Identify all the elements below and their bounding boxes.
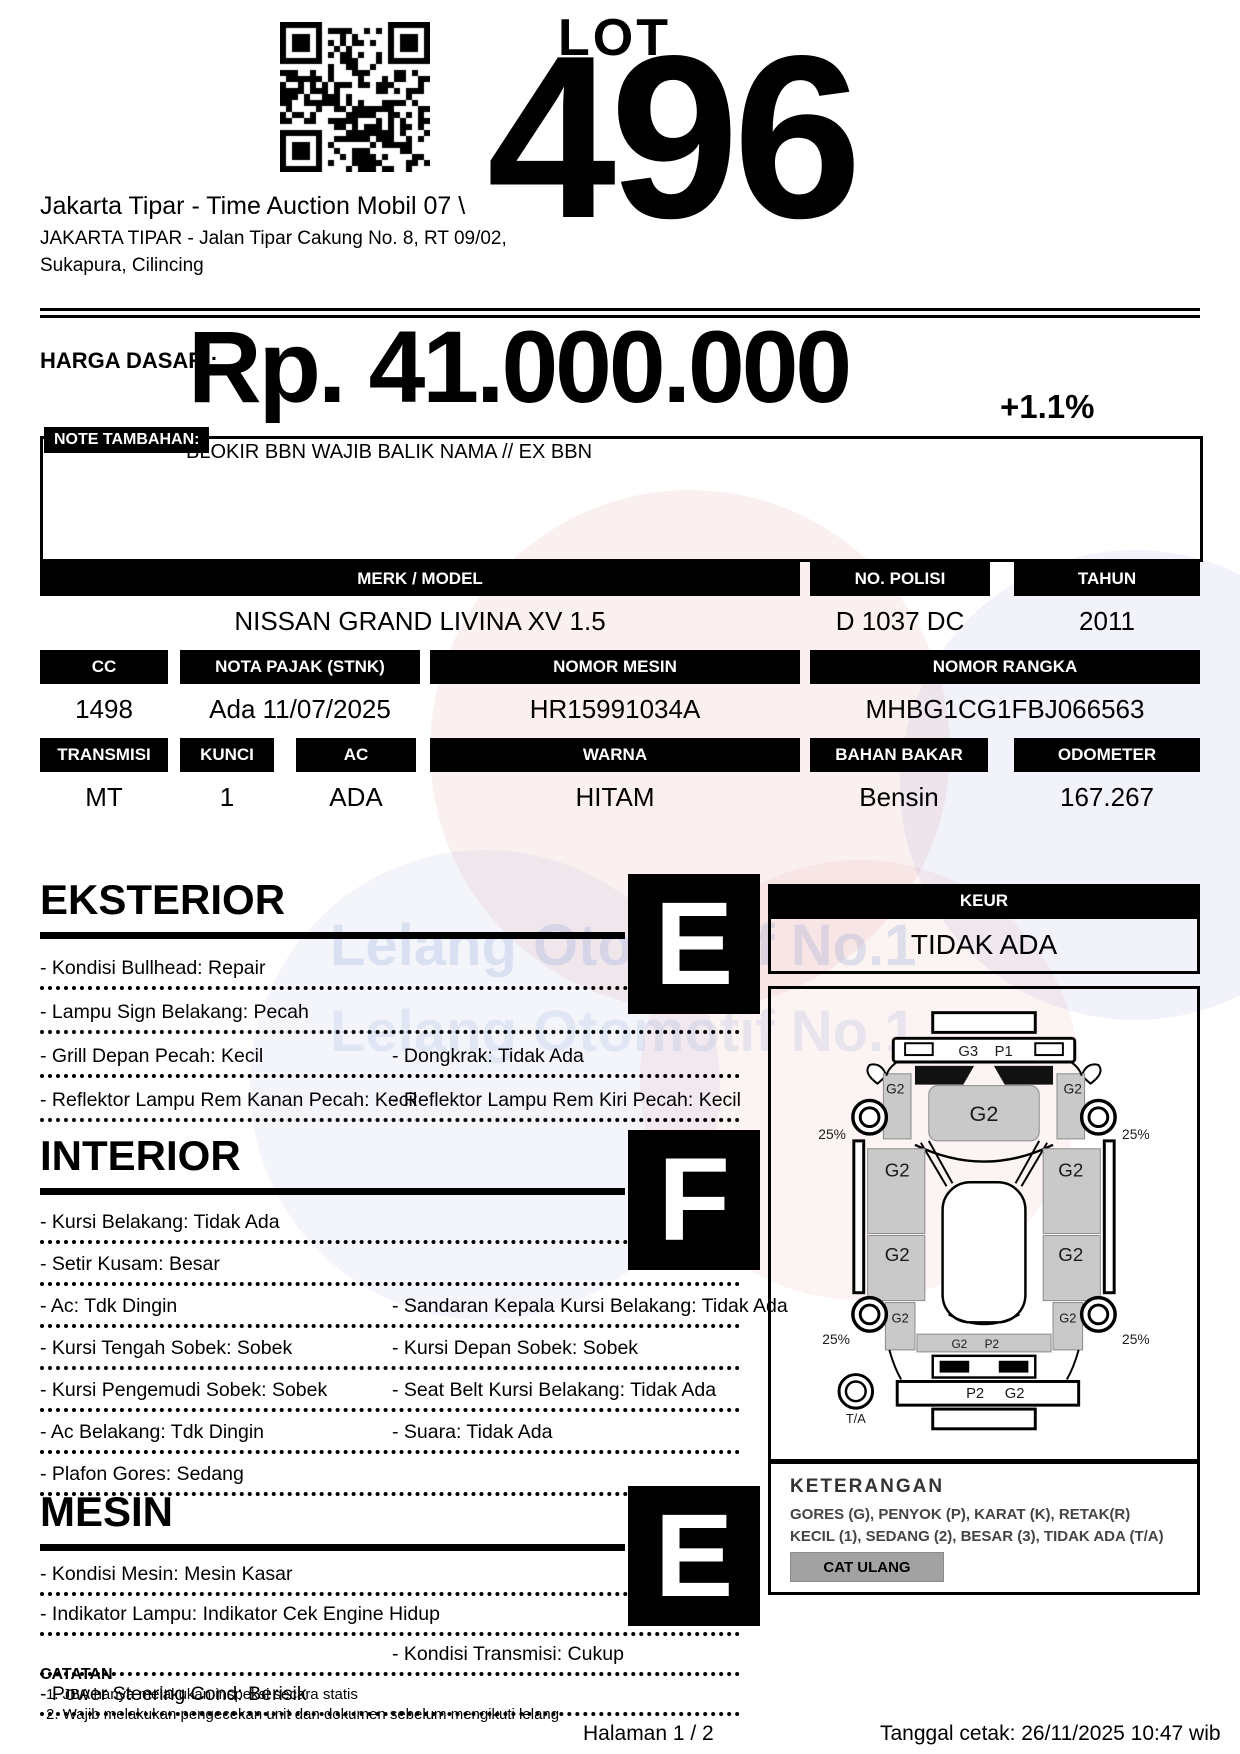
fog-lamp-right	[1035, 1043, 1063, 1055]
front-bumper-code: G3	[958, 1044, 978, 1060]
value-kunci: 1	[220, 772, 234, 822]
side-strip-right	[1104, 1141, 1114, 1293]
tire-rear-right-label: 25%	[1122, 1332, 1150, 1347]
header-tahun: TAHUN	[1014, 562, 1200, 596]
quarter-right-code: G2	[1059, 1310, 1076, 1325]
fender-right-code: G2	[1064, 1082, 1082, 1097]
header-bahan-bakar: BAHAN BAKAR	[810, 738, 988, 772]
header-no-polisi: NO. POLISI	[810, 562, 990, 596]
list-item: - Reflektor Lampu Rem Kanan Pecah: Kecil…	[40, 1078, 740, 1122]
value-tahun: 2011	[1079, 596, 1135, 646]
spare-wheel-label: T/A	[846, 1411, 866, 1426]
list-item: - Kursi Tengah Sobek: Sobek- Kursi Depan…	[40, 1328, 740, 1370]
value-warna: HITAM	[576, 772, 655, 822]
wheel-rear-left-inner	[860, 1305, 879, 1324]
tire-rear-left-label: 25%	[822, 1332, 850, 1347]
item-text: - Kondisi Mesin: Mesin Kasar	[40, 1563, 293, 1586]
item-text: - Lampu Sign Belakang: Pecah	[40, 1001, 309, 1024]
value-nomor-mesin: HR15991034A	[530, 684, 701, 734]
taillight-left	[940, 1361, 970, 1373]
keterangan-legend-line1: GORES (G), PENYOK (P), KARAT (K), RETAK(…	[790, 1506, 1130, 1523]
fender-left-code: G2	[886, 1082, 904, 1097]
header-transmisi: TRANSMISI	[40, 738, 168, 772]
cat-ulang-chip: CAT ULANG	[790, 1552, 944, 1582]
front-plate	[933, 1013, 1036, 1033]
header-ac: AC	[296, 738, 416, 772]
section-title-interior: INTERIOR	[40, 1132, 241, 1180]
header-odometer: ODOMETER	[1014, 738, 1200, 772]
value-bahan-bakar: Bensin	[859, 772, 939, 822]
tire-front-left-label: 25%	[818, 1127, 846, 1142]
rear-bumper-code: P2	[966, 1386, 984, 1402]
windshield-pillars	[921, 1141, 1047, 1186]
value-merk-model: NISSAN GRAND LIVINA XV 1.5	[234, 596, 605, 646]
rear-plate	[933, 1409, 1036, 1429]
item-text: - Reflektor Lampu Rem Kanan Pecah: Kecil	[40, 1089, 417, 1112]
rear-bumper	[897, 1381, 1078, 1405]
grade-interior: F	[628, 1130, 760, 1270]
auction-address-line1: JAKARTA TIPAR - Jalan Tipar Cakung No. 8…	[40, 228, 507, 250]
grille-left	[915, 1066, 974, 1085]
value-nota-pajak: Ada 11/07/2025	[209, 684, 391, 734]
catatan-title: CATATAN	[40, 1666, 113, 1684]
item-text: - Kursi Depan Sobek: Sobek	[392, 1337, 638, 1360]
door-front-right-code: G2	[1058, 1159, 1083, 1180]
item-text: - Ac Belakang: Tdk Dingin	[40, 1421, 264, 1444]
wheel-rear-right-inner	[1089, 1305, 1108, 1324]
item-text: - Power Steering Cond: Berisik	[40, 1683, 307, 1706]
spare-wheel-inner	[846, 1381, 866, 1401]
item-text: - Kursi Pengemudi Sobek: Sobek	[40, 1379, 327, 1402]
keur-header: KEUR	[768, 884, 1200, 918]
page-indicator: Halaman 1 / 2	[583, 1722, 714, 1746]
header-merk-model: MERK / MODEL	[40, 562, 800, 596]
note-text: BLOKIR BBN WAJIB BALIK NAMA // EX BBN	[186, 441, 592, 464]
grille-right	[994, 1066, 1053, 1085]
item-text: - Dongkrak: Tidak Ada	[392, 1045, 584, 1068]
qr-code	[280, 22, 430, 172]
list-item: - Kondisi Transmisi: Cukup	[40, 1636, 740, 1676]
list-item: - Kursi Pengemudi Sobek: Sobek- Seat Bel…	[40, 1370, 740, 1412]
car-damage-diagram: G3 P1 G2 G2 G2 G2 G2 G2 G2	[768, 986, 1200, 1462]
rear-panel-code: G2	[951, 1337, 967, 1351]
base-price-value: Rp. 41.000.000	[188, 316, 849, 418]
value-no-polisi: D 1037 DC	[836, 596, 965, 646]
keur-value: TIDAK ADA	[768, 916, 1200, 974]
header-nomor-mesin: NOMOR MESIN	[430, 650, 800, 684]
item-text: - Kondisi Bullhead: Repair	[40, 957, 265, 980]
auction-address-line2: Sukapura, Cilincing	[40, 255, 204, 277]
item-text: - Ac: Tdk Dingin	[40, 1295, 177, 1318]
value-nomor-rangka: MHBG1CG1FBJ066563	[866, 684, 1145, 734]
wheel-front-left-inner	[860, 1108, 879, 1127]
header-kunci: KUNCI	[180, 738, 274, 772]
fog-lamp-left	[905, 1043, 933, 1055]
value-ac: ADA	[329, 772, 382, 822]
door-front-left-code: G2	[885, 1159, 910, 1180]
section-title-mesin: MESIN	[40, 1488, 173, 1536]
item-text: - Reflektor Lampu Rem Kiri Pecah: Kecil	[392, 1089, 741, 1112]
lot-number: 496	[487, 22, 856, 254]
section-rule-mesin	[40, 1544, 625, 1551]
note-label: NOTE TAMBAHAN:	[44, 427, 209, 453]
section-title-eksterior: EKSTERIOR	[40, 876, 285, 924]
catatan-note-2: 2. Wajib melakukan pengecekan unit dan d…	[46, 1706, 559, 1723]
roof	[943, 1182, 1026, 1322]
section-rule-interior	[40, 1188, 625, 1195]
value-cc: 1498	[75, 684, 133, 734]
header-nomor-rangka: NOMOR RANGKA	[810, 650, 1200, 684]
wheel-front-right-inner	[1089, 1108, 1108, 1127]
item-text: - Kursi Tengah Sobek: Sobek	[40, 1337, 292, 1360]
keterangan-title: KETERANGAN	[790, 1476, 944, 1498]
taillight-right	[999, 1361, 1029, 1373]
rear-panel-code: P2	[985, 1337, 999, 1351]
section-rule-eksterior	[40, 932, 625, 939]
grade-eksterior: E	[628, 874, 760, 1014]
front-bumper-code: P1	[995, 1044, 1013, 1060]
price-change-badge: +1.1%	[1000, 388, 1095, 426]
hood-code: G2	[970, 1101, 999, 1126]
item-text: - Setir Kusam: Besar	[40, 1253, 220, 1276]
header-nota-pajak: NOTA PAJAK (STNK)	[180, 650, 420, 684]
rear-bumper-code: G2	[1005, 1386, 1025, 1402]
header-warna: WARNA	[430, 738, 800, 772]
item-text: - Indikator Lampu: Indikator Cek Engine …	[40, 1603, 440, 1626]
header-cc: CC	[40, 650, 168, 684]
tire-front-right-label: 25%	[1122, 1127, 1150, 1142]
item-text: - Kondisi Transmisi: Cukup	[392, 1643, 624, 1666]
door-rear-right-code: G2	[1058, 1244, 1083, 1265]
item-text: - Sandaran Kepala Kursi Belakang: Tidak …	[392, 1295, 788, 1318]
list-item: - Grill Depan Pecah: Kecil- Dongkrak: Ti…	[40, 1034, 740, 1078]
item-text: - Kursi Belakang: Tidak Ada	[40, 1211, 280, 1234]
value-transmisi: MT	[85, 772, 123, 822]
item-text: - Seat Belt Kursi Belakang: Tidak Ada	[392, 1379, 716, 1402]
auction-title: Jakarta Tipar - Time Auction Mobil 07 \	[40, 192, 465, 221]
print-timestamp: Tanggal cetak: 26/11/2025 10:47 wib	[880, 1722, 1221, 1746]
item-text: - Plafon Gores: Sedang	[40, 1463, 244, 1486]
value-odometer: 167.267	[1060, 772, 1154, 822]
grade-mesin: E	[628, 1486, 760, 1626]
keterangan-legend-line2: KECIL (1), SEDANG (2), BESAR (3), TIDAK …	[790, 1528, 1164, 1545]
side-strip-left	[854, 1141, 864, 1293]
door-rear-left-code: G2	[885, 1244, 910, 1265]
item-text: - Grill Depan Pecah: Kecil	[40, 1045, 263, 1068]
list-item: - Ac: Tdk Dingin- Sandaran Kepala Kursi …	[40, 1286, 740, 1328]
list-item: - Ac Belakang: Tdk Dingin- Suara: Tidak …	[40, 1412, 740, 1454]
item-text: - Suara: Tidak Ada	[392, 1421, 552, 1444]
quarter-left-code: G2	[892, 1310, 909, 1325]
